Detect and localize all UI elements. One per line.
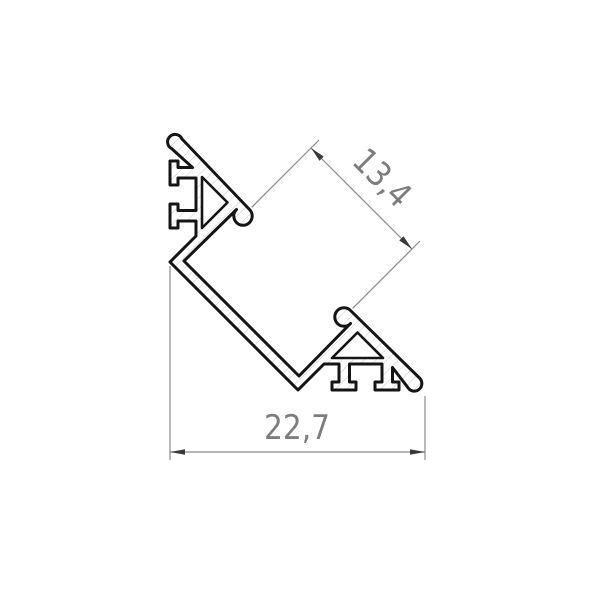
extension-line bbox=[252, 140, 319, 207]
dimension-label-diagonal: 13,4 bbox=[344, 141, 419, 216]
profile-cross-section-drawing: 13,4 22,7 bbox=[0, 0, 600, 600]
arrowhead bbox=[410, 449, 425, 455]
technical-drawing-canvas: 13,4 22,7 bbox=[0, 0, 600, 600]
arrowhead bbox=[170, 449, 185, 455]
extension-line bbox=[353, 241, 420, 308]
dimension-label-width: 22,7 bbox=[264, 408, 330, 448]
